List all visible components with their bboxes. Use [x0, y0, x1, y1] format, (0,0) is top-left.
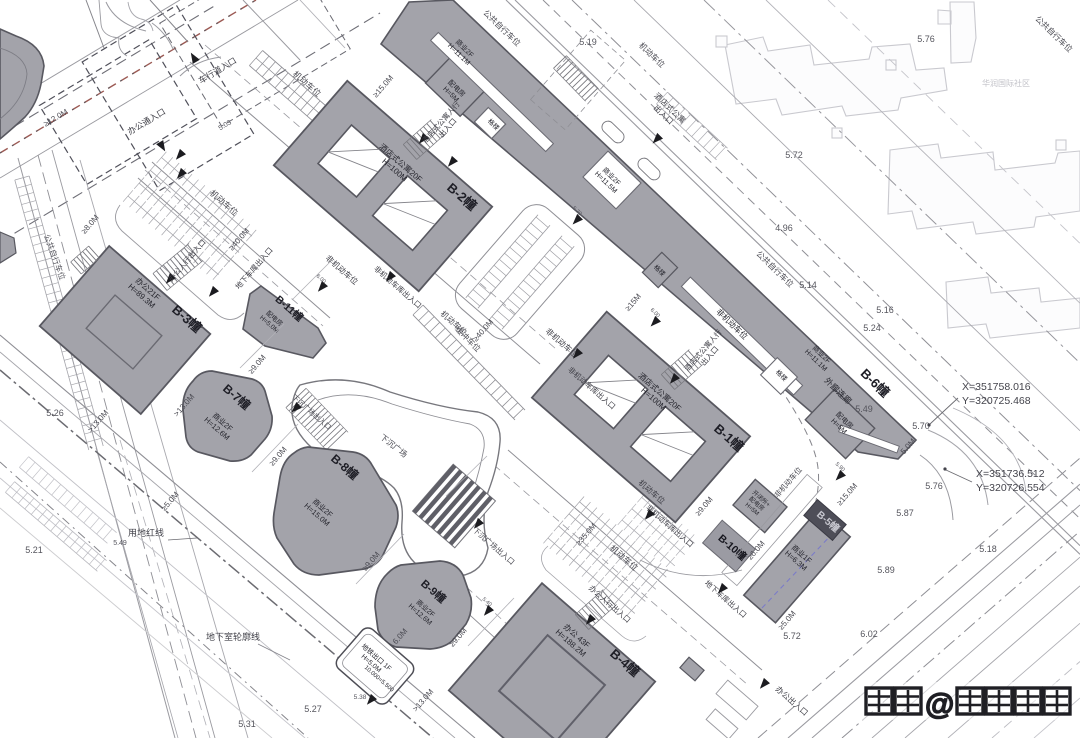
- svg-text:5.31: 5.31: [238, 719, 256, 729]
- svg-text:5.16: 5.16: [876, 305, 894, 315]
- svg-text:5.72: 5.72: [783, 631, 801, 641]
- svg-text:X=351736.512: X=351736.512: [976, 468, 1045, 480]
- svg-text:5.87: 5.87: [896, 508, 914, 518]
- svg-text:5.76: 5.76: [917, 34, 935, 44]
- svg-text:5.72: 5.72: [785, 150, 803, 160]
- svg-text:5.26: 5.26: [46, 408, 64, 418]
- svg-text:Y=320725.468: Y=320725.468: [962, 395, 1031, 407]
- svg-text:5.89: 5.89: [877, 565, 895, 575]
- svg-text:4.96: 4.96: [775, 223, 793, 233]
- svg-text:5.49: 5.49: [113, 540, 127, 547]
- svg-text:Y=320726.554: Y=320726.554: [976, 482, 1045, 494]
- svg-text:5.76: 5.76: [925, 481, 943, 491]
- svg-text:6.02: 6.02: [860, 629, 878, 639]
- svg-text:地下室轮廓线: 地下室轮廓线: [206, 631, 260, 642]
- svg-text:5.14: 5.14: [799, 280, 817, 290]
- svg-text:5.38: 5.38: [354, 694, 367, 701]
- svg-text:@: @: [925, 688, 954, 721]
- svg-text:5.21: 5.21: [25, 545, 43, 555]
- svg-text:5.49: 5.49: [855, 404, 873, 414]
- svg-text:5.24: 5.24: [863, 323, 881, 333]
- svg-text:X=351758.016: X=351758.016: [962, 381, 1031, 393]
- svg-text:5.70: 5.70: [912, 421, 930, 431]
- svg-text:用地红线: 用地红线: [128, 527, 164, 538]
- svg-text:5.18: 5.18: [979, 544, 997, 554]
- svg-text:5.19: 5.19: [579, 37, 597, 47]
- svg-text:华润国际社区: 华润国际社区: [982, 78, 1030, 88]
- svg-text:5.27: 5.27: [304, 704, 322, 714]
